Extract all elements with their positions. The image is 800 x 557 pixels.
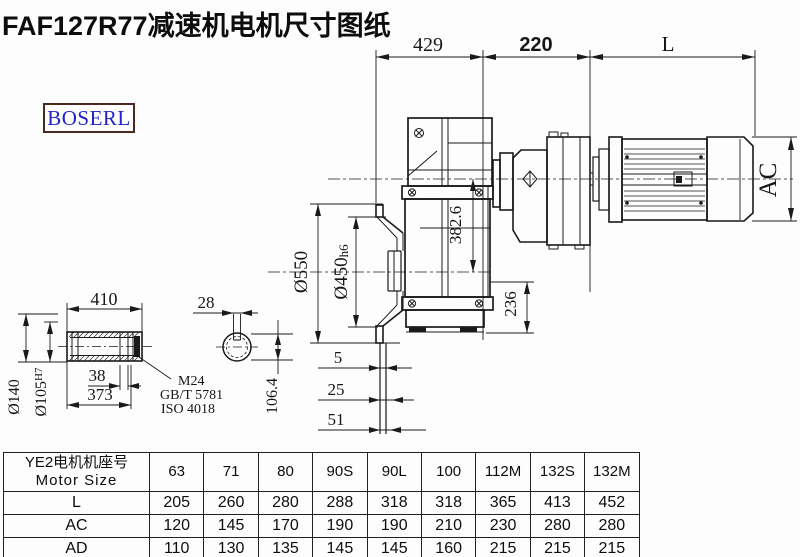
row-label: L xyxy=(4,492,150,515)
col-header: 132S xyxy=(530,453,584,492)
dim-450h6: Ø450h6 xyxy=(331,244,352,300)
dim-25: 25 xyxy=(328,380,345,399)
cell: 365 xyxy=(476,492,530,515)
cell: 145 xyxy=(313,538,367,557)
cell: 318 xyxy=(367,492,421,515)
dim-105h7: Ø105H7 xyxy=(33,367,50,417)
header-en: Motor Size xyxy=(4,472,149,490)
leader-line xyxy=(139,357,171,379)
col-header: 63 xyxy=(150,453,204,492)
col-header: 90L xyxy=(367,453,421,492)
flange-diameter-dims: Ø550 Ø450h6 xyxy=(291,204,400,343)
tie-rod-bolts xyxy=(625,155,703,205)
table-header-row: YE2电机机座号 Motor Size 63 71 80 90S 90L 100… xyxy=(4,453,640,492)
row-label: AC xyxy=(4,515,150,538)
cell: 145 xyxy=(367,538,421,557)
cell: 190 xyxy=(313,515,367,538)
hollow-shaft-dims: 410 Ø140 Ø105H7 38 xyxy=(6,289,223,417)
cell: 413 xyxy=(530,492,584,515)
adapter-housing xyxy=(493,132,590,249)
col-header: 90S xyxy=(313,453,367,492)
cell: 120 xyxy=(150,515,204,538)
drawing-page: FAF127R77减速机电机尺寸图纸 BOSERL 429 220 L xyxy=(0,0,800,557)
table-row-L: L 205 260 280 288 318 318 365 413 452 xyxy=(4,492,640,515)
col-header: 80 xyxy=(258,453,312,492)
wall-offset-dims: 5 25 51 xyxy=(318,348,426,433)
dim-550: Ø550 xyxy=(291,251,312,293)
motor-fins xyxy=(624,149,705,211)
hollow-shaft-detail xyxy=(58,332,171,379)
cell: 145 xyxy=(204,515,258,538)
cell: 160 xyxy=(421,538,475,557)
cell: 210 xyxy=(421,515,475,538)
dim-220: 220 xyxy=(519,34,552,56)
note-iso4018: ISO 4018 xyxy=(161,402,215,417)
cell: 452 xyxy=(585,492,639,515)
dim-51: 51 xyxy=(328,410,345,429)
dim-38: 38 xyxy=(89,366,106,385)
technical-drawing: 429 220 L xyxy=(0,0,800,452)
dim-AC: AC xyxy=(755,163,782,198)
dim-28: 28 xyxy=(198,293,215,312)
dim-410: 410 xyxy=(91,289,118,309)
cell: 288 xyxy=(313,492,367,515)
col-header: 112M xyxy=(476,453,530,492)
cell: 230 xyxy=(476,515,530,538)
col-header: 71 xyxy=(204,453,258,492)
cell: 190 xyxy=(367,515,421,538)
dim-106-4: 106.4 xyxy=(264,378,281,414)
col-header: 132M xyxy=(585,453,639,492)
header-cn: YE2电机机座号 xyxy=(4,454,149,472)
cell: 280 xyxy=(585,515,639,538)
cell: 280 xyxy=(530,515,584,538)
cell: 170 xyxy=(258,515,312,538)
cell: 215 xyxy=(476,538,530,557)
note-m24: M24 xyxy=(178,374,204,389)
dim-236: 236 xyxy=(501,291,520,317)
row-label: AD xyxy=(4,538,150,557)
dim-L: L xyxy=(662,32,675,56)
axis-distance-dim: 382.6 xyxy=(446,179,476,272)
note-gbt5781: GB/T 5781 xyxy=(160,388,223,403)
dim-5: 5 xyxy=(334,348,343,367)
col-header: 100 xyxy=(421,453,475,492)
cell: 205 xyxy=(150,492,204,515)
cell: 318 xyxy=(421,492,475,515)
cell: 280 xyxy=(258,492,312,515)
table-row-AD: AD 110 130 135 145 145 160 215 215 215 xyxy=(4,538,640,557)
table-header-motor-size: YE2电机机座号 Motor Size xyxy=(4,453,150,492)
motor xyxy=(590,137,753,222)
cell: 110 xyxy=(150,538,204,557)
motor-size-table: YE2电机机座号 Motor Size 63 71 80 90S 90L 100… xyxy=(3,452,640,557)
dim-429: 429 xyxy=(413,34,443,56)
dim-373: 373 xyxy=(87,385,113,404)
cell: 215 xyxy=(585,538,639,557)
cell: 260 xyxy=(204,492,258,515)
table-row-AC: AC 120 145 170 190 190 210 230 280 280 xyxy=(4,515,640,538)
dim-140: Ø140 xyxy=(6,379,23,415)
dim-382-6: 382.6 xyxy=(446,206,465,244)
cell: 135 xyxy=(258,538,312,557)
cell: 130 xyxy=(204,538,258,557)
cell: 215 xyxy=(530,538,584,557)
